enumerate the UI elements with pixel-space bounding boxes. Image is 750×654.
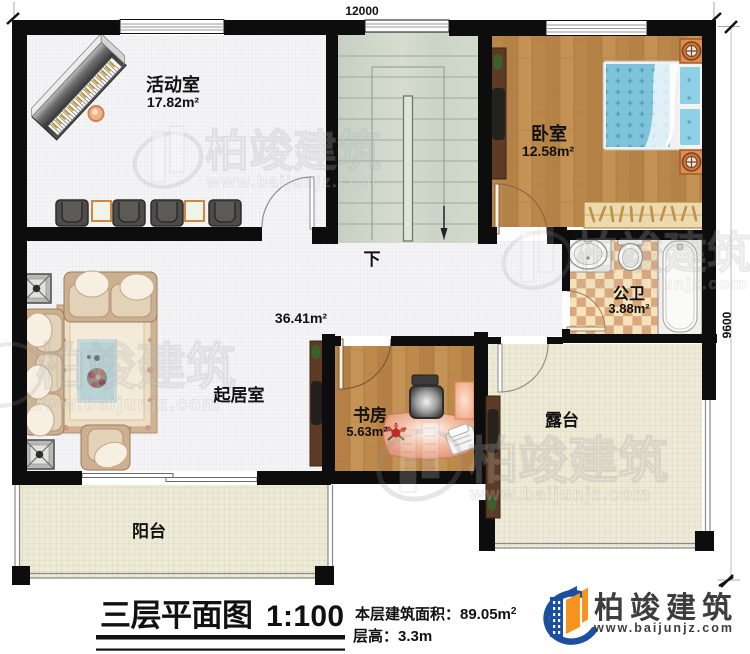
svg-text:www.baijunjz.com: www.baijunjz.com	[469, 484, 651, 504]
svg-text:www.baijunjz.com: www.baijunjz.com	[27, 394, 221, 415]
svg-text:www.baijunjz.com: www.baijunjz.com	[576, 274, 748, 293]
svg-text:12000: 12000	[345, 4, 379, 18]
svg-text:书房: 书房	[353, 405, 387, 425]
svg-text:柏竣建筑: 柏竣建筑	[205, 127, 381, 176]
svg-text:17.82m²: 17.82m²	[147, 94, 199, 110]
svg-text:柏竣建筑: 柏竣建筑	[575, 229, 750, 278]
svg-text:本层建筑面积：89.05m2: 本层建筑面积：89.05m2	[355, 605, 517, 623]
svg-text:活动室: 活动室	[146, 74, 200, 95]
svg-text:5.63m²: 5.63m²	[346, 424, 388, 439]
svg-text:层高：3.3m: 层高：3.3m	[353, 627, 432, 645]
svg-text:1:100: 1:100	[266, 600, 344, 633]
svg-text:阳台: 阳台	[132, 521, 166, 541]
svg-text:36.41m²: 36.41m²	[275, 310, 327, 326]
svg-text:3.88m²: 3.88m²	[608, 301, 650, 316]
svg-text:露台: 露台	[545, 410, 579, 430]
svg-text:12.58m²: 12.58m²	[522, 143, 574, 159]
svg-text:三层平面图: 三层平面图	[100, 598, 253, 633]
svg-text:www.baijunjz.com: www.baijunjz.com	[206, 172, 378, 191]
svg-text:下: 下	[364, 250, 381, 269]
svg-text:柏竣建筑: 柏竣建筑	[36, 339, 236, 395]
svg-text:起居室: 起居室	[213, 385, 265, 405]
svg-text:卧室: 卧室	[531, 123, 567, 144]
svg-text:9600: 9600	[720, 311, 734, 338]
svg-text:柏竣建筑: 柏竣建筑	[468, 433, 668, 489]
